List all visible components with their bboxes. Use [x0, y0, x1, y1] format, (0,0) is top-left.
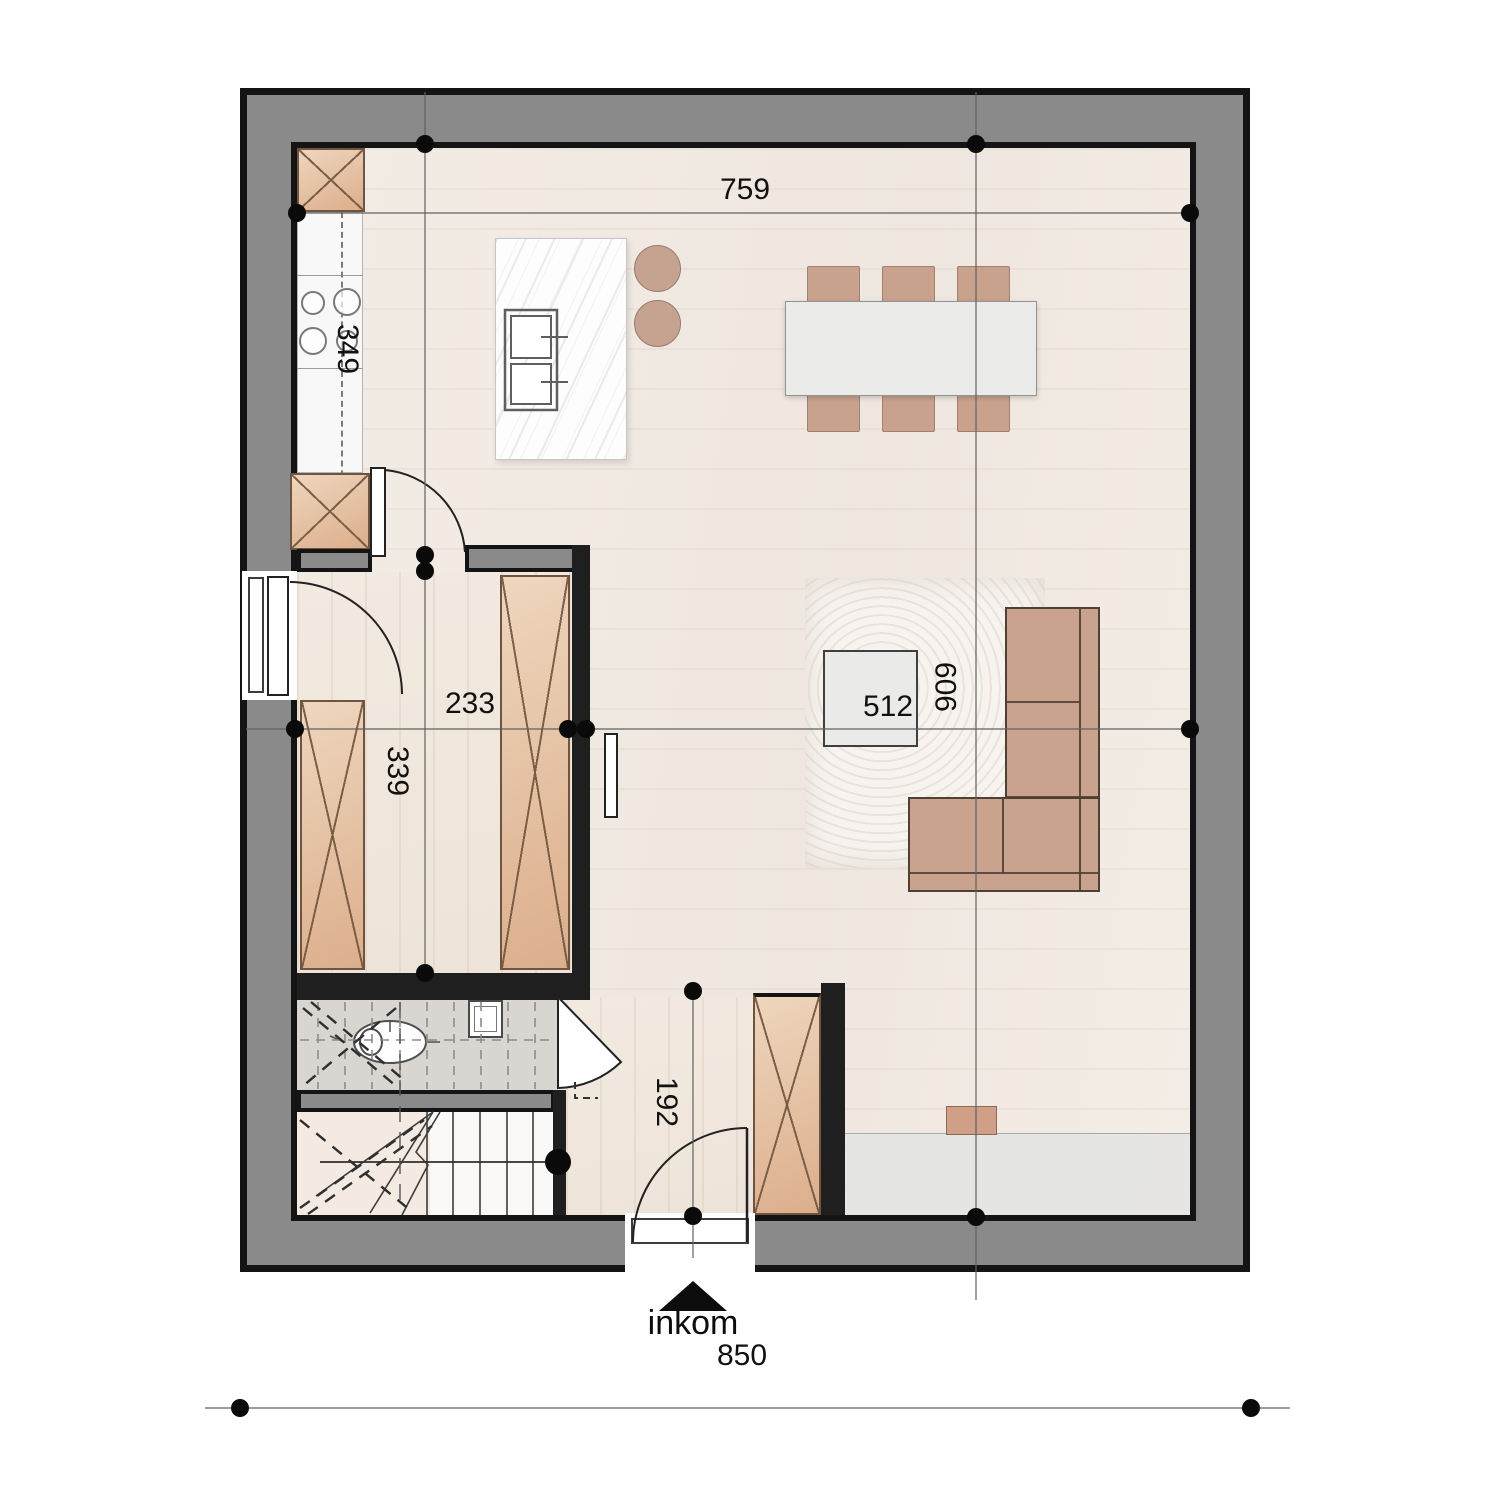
toilet-icon [330, 1021, 440, 1063]
dim-living-width: 512 [838, 692, 938, 722]
wc-door [558, 997, 621, 1088]
dim-kitchen-zone-height: 349 [332, 299, 362, 399]
kitchen-door [371, 468, 465, 556]
floor-plan: 759 349 233 339 512 909 192 850 inkom [0, 0, 1500, 1500]
storage-door [268, 577, 402, 695]
dim-overall-width: 850 [692, 1341, 792, 1371]
dim-hall-depth: 192 [651, 1052, 681, 1152]
dim-storage-width: 233 [420, 689, 520, 719]
dim-top-width: 759 [695, 175, 795, 205]
staircase-icon [316, 1112, 533, 1215]
plan-linework [0, 0, 1500, 1500]
entrance-label: inkom [613, 1306, 773, 1340]
dim-storage-height: 339 [382, 721, 412, 821]
double-sink-icon [505, 310, 568, 410]
dim-interior-height: 909 [932, 637, 962, 737]
